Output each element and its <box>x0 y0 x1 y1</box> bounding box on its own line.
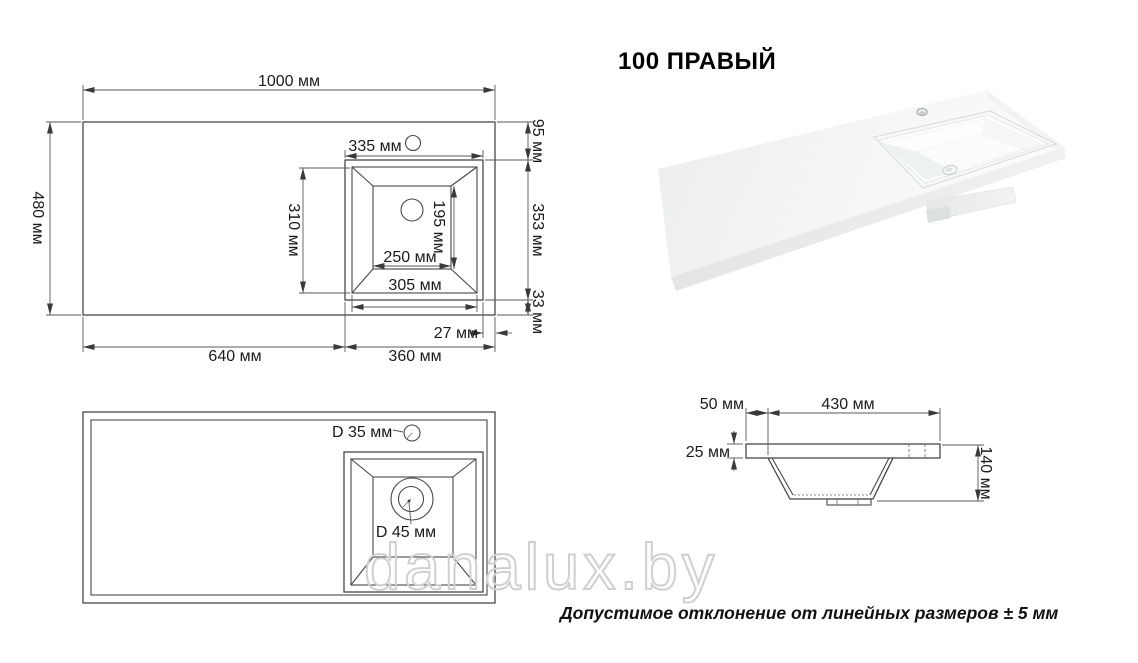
drawing-sheet: 1000 мм 480 мм 335 мм 95 мм 353 мм 33 мм… <box>0 0 1138 663</box>
bottom-view-labels: D 35 мм D 45 мм <box>332 424 436 541</box>
slab-section-outline <box>746 444 940 458</box>
render-faucet-hole <box>917 109 927 116</box>
drain-hole-icon <box>401 199 423 221</box>
basin-section-outline <box>768 458 893 499</box>
render-3d <box>658 90 1066 291</box>
dim-basin-width: 430 мм <box>821 396 874 413</box>
technical-drawing: 1000 мм 480 мм 335 мм 95 мм 353 мм 33 мм… <box>0 0 1138 663</box>
top-view-dimension-labels: 1000 мм 480 мм 335 мм 95 мм 353 мм 33 мм… <box>29 73 546 365</box>
dim-height: 140 мм <box>977 446 994 499</box>
page-title: 100 ПРАВЫЙ <box>618 48 776 76</box>
dim-drain-hole: D 45 мм <box>376 524 436 541</box>
dim-basin-bottom-height: 195 мм <box>430 200 447 253</box>
countertop-inner-outline <box>91 420 487 595</box>
countertop-outline-2 <box>83 412 495 603</box>
sink-outer-outline-2 <box>344 452 483 592</box>
dim-bottom-offset: 33 мм <box>529 290 546 334</box>
dim-right-span: 360 мм <box>388 348 441 365</box>
dim-total-width: 1000 мм <box>258 73 320 90</box>
dim-sink-outer-height: 353 мм <box>529 203 546 256</box>
dim-rim-height: 310 мм <box>285 203 302 256</box>
section-outlines <box>746 444 940 505</box>
sink-bottom-outline-2 <box>373 477 453 557</box>
dim-right-offset: 27 мм <box>434 325 478 342</box>
tolerance-note: Допустимое отклонение от линейных размер… <box>560 603 1058 624</box>
section-view: 50 мм 430 мм 25 мм 140 мм <box>686 396 994 505</box>
section-dimension-lines <box>727 408 984 501</box>
dim-thickness: 25 мм <box>686 444 730 461</box>
dim-depth: 480 мм <box>29 191 46 244</box>
dim-edge-offset: 50 мм <box>700 396 744 413</box>
bottom-view-outlines <box>83 412 495 603</box>
dim-faucet-hole: D 35 мм <box>332 424 392 441</box>
section-labels: 50 мм 430 мм 25 мм 140 мм <box>686 396 994 500</box>
dim-left-span: 640 мм <box>208 348 261 365</box>
drain-stub-outline <box>827 499 871 505</box>
faucet-hole-icon <box>406 136 421 151</box>
dim-rim-width: 305 мм <box>388 277 441 294</box>
drain-outer-circle <box>391 478 433 520</box>
dim-basin-bottom-width: 250 мм <box>383 249 436 266</box>
top-view: 1000 мм 480 мм 335 мм 95 мм 353 мм 33 мм… <box>29 73 546 365</box>
dim-sink-outer-width: 335 мм <box>348 138 401 155</box>
dim-top-offset: 95 мм <box>529 119 546 163</box>
bottom-view: D 35 мм D 45 мм <box>83 412 495 603</box>
